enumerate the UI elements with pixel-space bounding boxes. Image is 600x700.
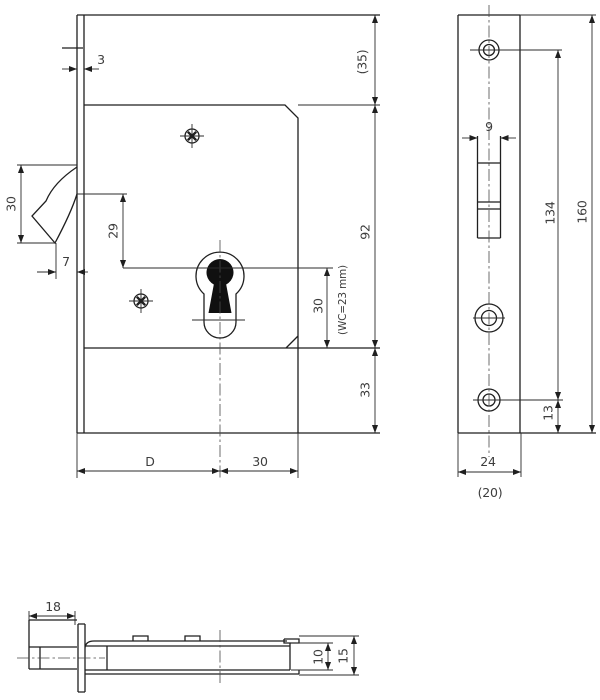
dim-screw-span: 134 (543, 201, 558, 225)
dim-case-height: 92 (358, 224, 373, 240)
dim-hook-tip-offset: 7 (62, 254, 70, 269)
dim-slot-width: 9 (485, 119, 493, 134)
dim-bottom-margin: 33 (358, 382, 373, 398)
dim-wc-note: (WC=23 mm) (337, 265, 349, 335)
dim-case-width-ref: (20) (478, 485, 503, 500)
front-view: 3 30 7 29 (35) 92 33 30 (WC=23 mm) D 30 (4, 15, 381, 478)
dim-plate-width: 24 (480, 454, 496, 469)
dim-bolt-protrusion: 18 (45, 599, 61, 614)
dim-plate-thickness: 3 (97, 52, 105, 67)
technical-drawing: 3 30 7 29 (35) 92 33 30 (WC=23 mm) D 30 … (0, 0, 600, 700)
hook-bolt (32, 167, 77, 243)
dim-keyhole-height: 30 (311, 298, 326, 314)
screw-bottom (129, 289, 153, 313)
dim-hook-height: 30 (4, 196, 19, 212)
extension-lines (17, 105, 380, 478)
drawing-canvas: 3 30 7 29 (35) 92 33 30 (WC=23 mm) D 30 … (0, 0, 600, 700)
dim-bottom-screw-offset: 13 (541, 405, 556, 421)
dim-top-margin: (35) (355, 50, 370, 75)
dim-case-thickness: 10 (311, 649, 326, 665)
dim-hook-to-keyhole: 29 (106, 223, 121, 239)
side-centerlines (17, 630, 220, 684)
extension-lines (458, 15, 596, 477)
faceplate-view: 9 134 160 13 24 (20) (458, 5, 596, 500)
screw-top (180, 124, 204, 148)
side-view: 18 10 15 (17, 599, 359, 692)
dim-overall-thickness: 15 (336, 648, 351, 664)
dim-backset: D (145, 454, 154, 469)
dim-keyhole-to-edge: 30 (252, 454, 268, 469)
dim-plate-height: 160 (575, 200, 590, 224)
side-outline (29, 620, 299, 692)
